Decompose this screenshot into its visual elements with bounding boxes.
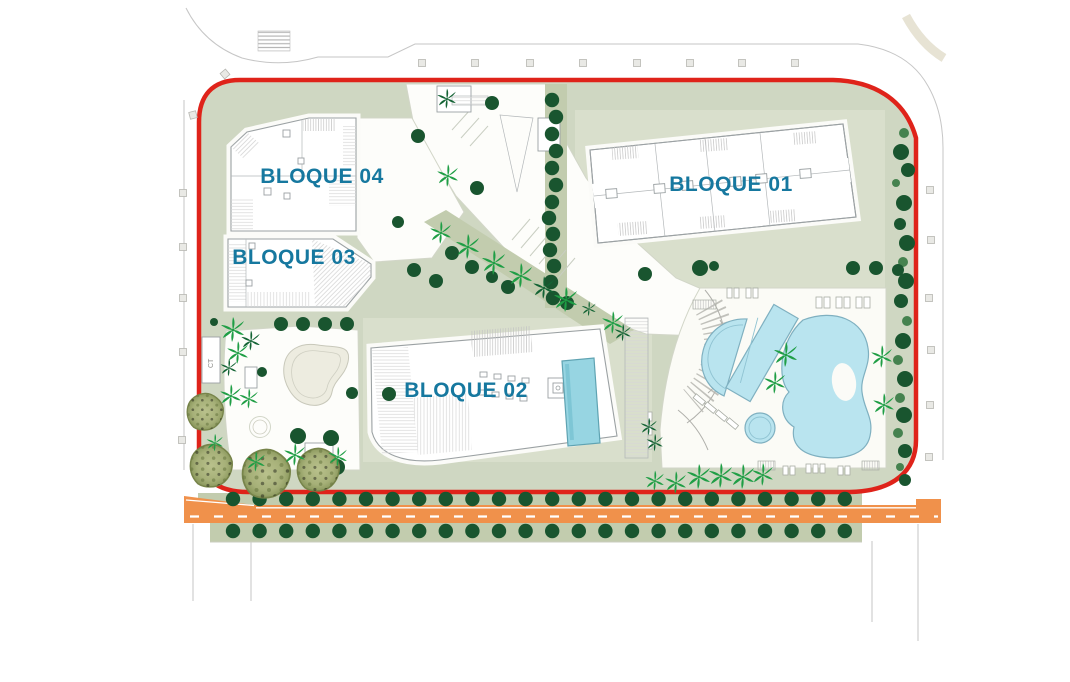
tree xyxy=(465,492,479,506)
tree xyxy=(518,524,532,538)
pavement-square xyxy=(926,295,933,302)
tree xyxy=(758,492,772,506)
tree xyxy=(898,444,912,458)
tree xyxy=(894,218,906,230)
tree xyxy=(545,195,559,209)
tree xyxy=(549,178,563,192)
tree xyxy=(625,524,639,538)
tree xyxy=(412,524,426,538)
pavement-square xyxy=(927,402,934,409)
tree xyxy=(470,181,484,195)
tree xyxy=(465,524,479,538)
tree xyxy=(901,163,915,177)
pavement-square xyxy=(634,60,641,67)
tree xyxy=(359,492,373,506)
tree xyxy=(902,316,912,326)
tree xyxy=(549,144,563,158)
label-bloque-03: BLOQUE 03 xyxy=(232,246,356,269)
tree xyxy=(257,367,267,377)
tree xyxy=(896,463,904,471)
tree xyxy=(731,492,745,506)
pavement-square xyxy=(928,347,935,354)
tree xyxy=(895,333,911,349)
tree xyxy=(296,317,310,331)
tree xyxy=(518,492,532,506)
olive-tree xyxy=(243,449,291,497)
tree xyxy=(445,246,459,260)
tree xyxy=(893,144,909,160)
tree xyxy=(651,492,665,506)
pavement-square xyxy=(928,237,935,244)
tree xyxy=(651,524,665,538)
pergola-small xyxy=(693,300,716,309)
tree xyxy=(485,96,499,110)
tree xyxy=(226,524,240,538)
tree xyxy=(306,492,320,506)
tree xyxy=(439,492,453,506)
pavement-square xyxy=(419,60,426,67)
tree xyxy=(572,524,586,538)
tree xyxy=(392,216,404,228)
tree xyxy=(547,259,561,273)
tree xyxy=(572,492,586,506)
tree xyxy=(346,387,358,399)
round-pool xyxy=(745,413,775,443)
tree xyxy=(252,524,266,538)
tree xyxy=(598,492,612,506)
tree xyxy=(705,524,719,538)
pavement-square xyxy=(472,60,479,67)
street-curve xyxy=(906,16,944,58)
olive-tree xyxy=(190,444,232,486)
tree xyxy=(625,492,639,506)
tree xyxy=(838,524,852,538)
pavement-square xyxy=(220,69,230,79)
tree xyxy=(731,524,745,538)
tree xyxy=(290,428,306,444)
tree xyxy=(893,355,903,365)
tree xyxy=(838,492,852,506)
master-plan-drawing: CT xyxy=(0,0,1070,682)
pavement-square xyxy=(180,190,187,197)
tree xyxy=(318,317,332,331)
tree xyxy=(709,261,719,271)
tree xyxy=(895,393,905,403)
tree xyxy=(411,129,425,143)
tree xyxy=(893,428,903,438)
tree xyxy=(492,492,506,506)
crosswalk xyxy=(258,31,290,51)
tree xyxy=(210,318,218,326)
label-bloque-04: BLOQUE 04 xyxy=(260,165,384,188)
tree xyxy=(899,474,911,486)
tree xyxy=(226,492,240,506)
pavement-square xyxy=(180,244,187,251)
pavement-square xyxy=(792,60,799,67)
tree xyxy=(323,430,339,446)
tree xyxy=(486,271,498,283)
tree xyxy=(811,524,825,538)
tree xyxy=(332,524,346,538)
pavement-square xyxy=(180,349,187,356)
tree xyxy=(274,317,288,331)
tree xyxy=(545,492,559,506)
tree xyxy=(542,211,556,225)
tree xyxy=(412,492,426,506)
tree xyxy=(892,179,900,187)
pavement-square xyxy=(580,60,587,67)
tree xyxy=(439,524,453,538)
tree xyxy=(332,492,346,506)
tree xyxy=(894,294,908,308)
tree xyxy=(543,243,557,257)
tree xyxy=(897,371,913,387)
tree xyxy=(549,110,563,124)
olive-tree xyxy=(187,393,223,430)
tree xyxy=(598,524,612,538)
tree xyxy=(545,93,559,107)
tree xyxy=(869,261,883,275)
tree xyxy=(385,492,399,506)
tree xyxy=(784,492,798,506)
pavement-square xyxy=(739,60,746,67)
site-plan-page: CT xyxy=(0,0,1070,682)
avenue xyxy=(184,493,941,542)
tree xyxy=(892,264,904,276)
label-bloque-01: BLOQUE 01 xyxy=(669,173,793,196)
ct-label: CT xyxy=(208,358,215,368)
tree xyxy=(692,260,708,276)
tree xyxy=(279,492,293,506)
pavement-square xyxy=(527,60,534,67)
pavement-square xyxy=(927,187,934,194)
lagoon-pool xyxy=(782,315,871,457)
tree xyxy=(899,235,915,251)
pavement-square xyxy=(189,111,198,120)
tree xyxy=(811,492,825,506)
tree xyxy=(546,291,560,305)
tree xyxy=(545,161,559,175)
tree xyxy=(896,407,912,423)
tree xyxy=(279,524,293,538)
tree xyxy=(546,227,560,241)
tree xyxy=(429,274,443,288)
tree xyxy=(407,263,421,277)
tree xyxy=(784,524,798,538)
tree xyxy=(896,195,912,211)
pavement-square xyxy=(180,295,187,302)
tree xyxy=(340,317,354,331)
tree xyxy=(359,524,373,538)
pavement-square xyxy=(926,454,933,461)
tree xyxy=(492,524,506,538)
tree xyxy=(385,524,399,538)
tree xyxy=(758,524,772,538)
tree xyxy=(705,492,719,506)
pavement-square xyxy=(687,60,694,67)
label-bloque-02: BLOQUE 02 xyxy=(404,379,528,402)
tree xyxy=(899,128,909,138)
tree xyxy=(545,127,559,141)
tree xyxy=(382,387,396,401)
tree xyxy=(678,492,692,506)
pergola-band xyxy=(625,318,648,458)
tree xyxy=(678,524,692,538)
pavement-square xyxy=(179,437,186,444)
tree xyxy=(545,524,559,538)
tree xyxy=(638,267,652,281)
tree xyxy=(465,260,479,274)
tree xyxy=(846,261,860,275)
tree xyxy=(306,524,320,538)
